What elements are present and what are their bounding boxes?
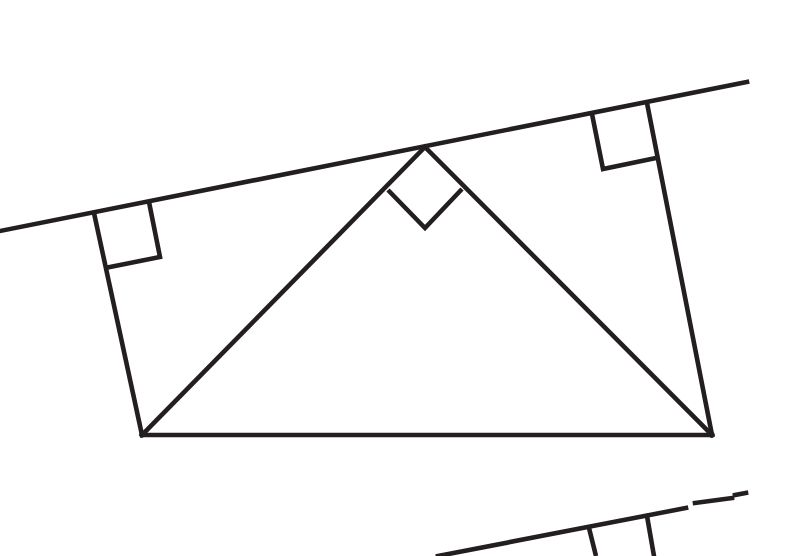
geometry-diagram [0,0,791,556]
transversal2-end-dash [735,493,746,495]
diagram-page [0,0,791,556]
diagram-background [0,0,791,556]
